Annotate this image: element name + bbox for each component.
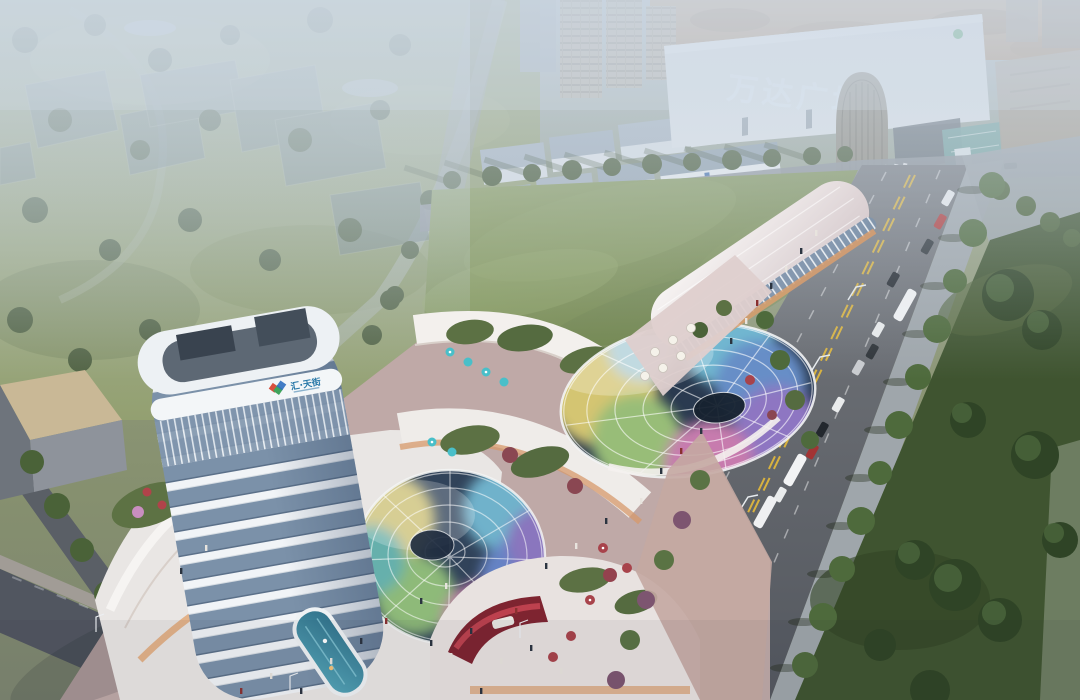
rendering-stage: 万达广场: [0, 0, 1080, 700]
haze-top: [0, 0, 1080, 110]
vignette: [0, 620, 1080, 700]
rendering-canvas: 万达广场: [0, 0, 1080, 700]
